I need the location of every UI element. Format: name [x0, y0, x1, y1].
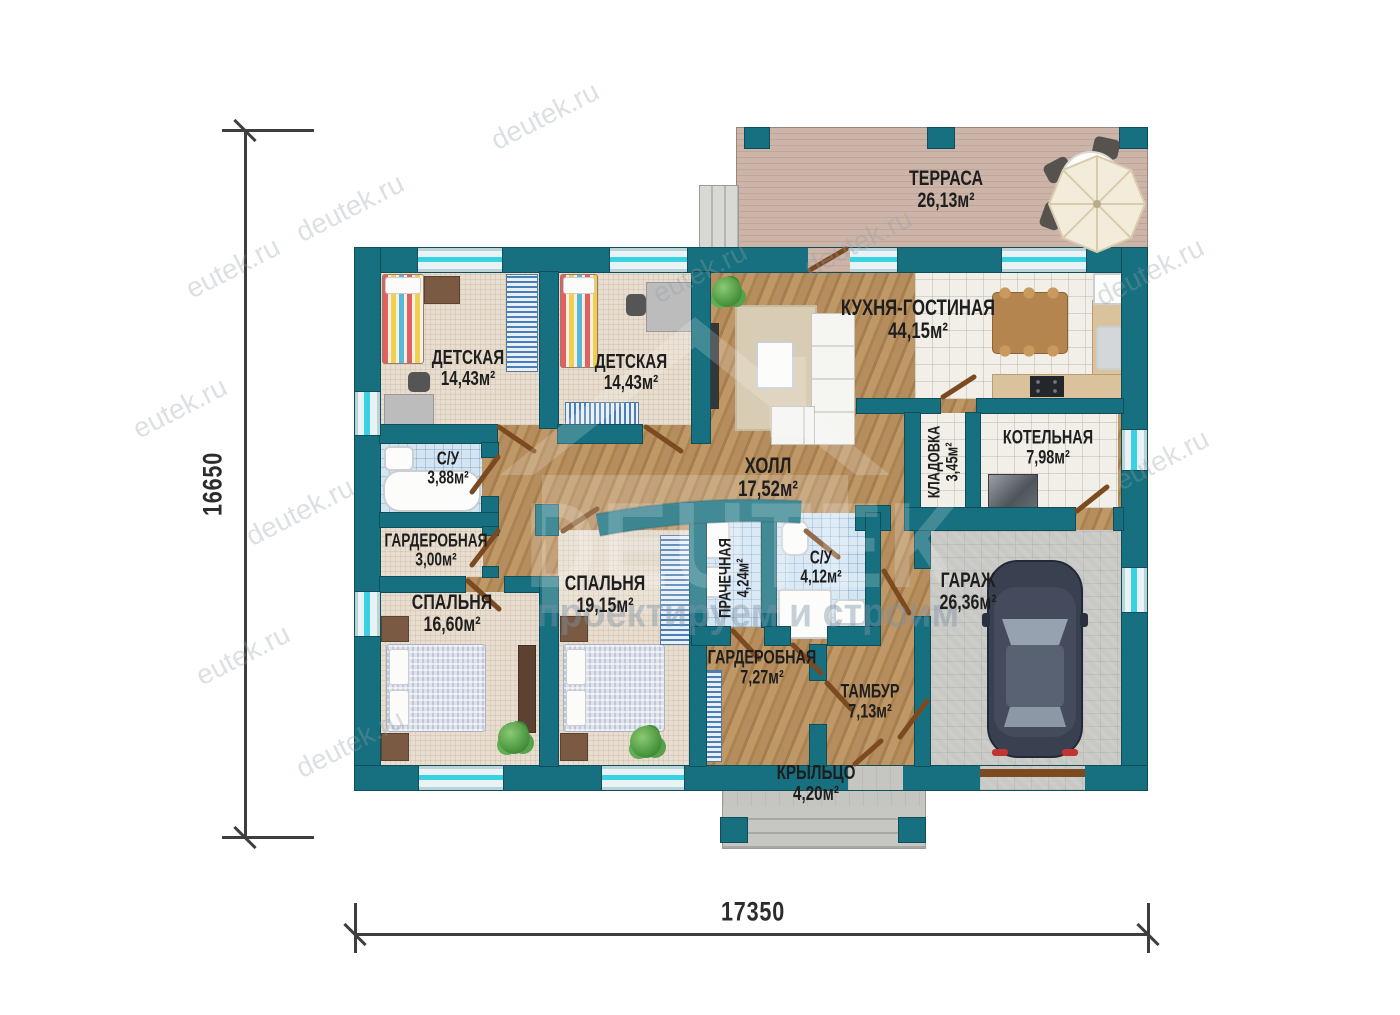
room-area: 4,12м²	[800, 566, 841, 586]
room-label-boiler: КОТЕЛЬНАЯ 7,98м²	[989, 428, 1108, 468]
room-label-nursery-2: ДЕТСКАЯ 14,43м²	[583, 352, 678, 394]
room-area: 14,43м²	[441, 368, 495, 390]
dimension-label-vertical: 16650	[198, 444, 229, 524]
room-area: 44,15м²	[888, 318, 948, 343]
room-label-hall: ХОЛЛ 17,52м²	[729, 455, 808, 501]
room-label-bathroom-1: С/У 3,88м²	[421, 449, 475, 486]
room-area: 4,24м²	[733, 558, 752, 597]
dimension-label-horizontal: 17350	[713, 897, 793, 928]
room-label-pantry: КЛАДОВКА 3,45м²	[925, 414, 960, 509]
room-area: 3,88м²	[427, 467, 468, 487]
room-name: ТЕРРАСА	[909, 167, 983, 190]
room-area: 3,00м²	[415, 549, 456, 569]
room-area: 17,52м²	[738, 476, 798, 501]
room-name: КРЫЛЬЦО	[777, 762, 856, 784]
room-area: 16,60м²	[423, 613, 480, 636]
room-name: ТАМБУР	[840, 681, 899, 702]
room-label-nursery-1: ДЕТСКАЯ 14,43м²	[420, 348, 515, 390]
room-label-laundry: ПРАЧЕЧНАЯ 4,24м²	[716, 525, 751, 630]
room-area: 14,43м²	[604, 372, 658, 394]
room-area: 4,20м²	[793, 783, 839, 805]
room-label-porch: КРЫЛЬЦО 4,20м²	[764, 763, 868, 805]
room-name: КУХНЯ-ГОСТИНАЯ	[841, 295, 995, 320]
room-label-bedroom-1: СПАЛЬНЯ 16,60м²	[399, 592, 505, 636]
room-label-kitchen-living: КУХНЯ-ГОСТИНАЯ 44,15м²	[817, 297, 1020, 343]
room-area: 26,13м²	[917, 189, 974, 212]
room-area: 19,15м²	[576, 594, 633, 617]
room-name: КОТЕЛЬНАЯ	[1003, 427, 1093, 448]
floor-plan-canvas: DEUTEK проектируем и строим deutek.ru eu…	[0, 0, 1400, 1015]
room-label-wardrobe-1: ГАРДЕРОБНАЯ 3,00м²	[368, 531, 503, 568]
room-name: ХОЛЛ	[745, 453, 792, 478]
room-name: С/У	[810, 547, 832, 567]
room-area: 7,13м²	[848, 701, 892, 722]
room-name: ДЕТСКАЯ	[595, 351, 667, 373]
room-label-bathroom-2: С/У 4,12м²	[794, 548, 848, 585]
room-name: ГАРДЕРОБНАЯ	[708, 647, 817, 668]
room-label-wardrobe-2: ГАРДЕРОБНАЯ 7,27м²	[691, 648, 834, 688]
room-label-terrace: ТЕРРАСА 26,13м²	[897, 168, 994, 212]
room-name: СПАЛЬНЯ	[565, 572, 645, 595]
room-name: ПРАЧЕЧНАЯ	[715, 538, 734, 618]
room-name: КЛАДОВКА	[924, 426, 943, 499]
room-name: С/У	[437, 448, 459, 468]
room-name: ГАРАЖ	[941, 569, 996, 592]
room-label-bedroom-2: СПАЛЬНЯ 19,15м²	[552, 573, 658, 617]
room-label-vestibule: ТАМБУР 7,13м²	[831, 682, 909, 722]
room-area: 7,27м²	[740, 667, 784, 688]
room-name: СПАЛЬНЯ	[412, 591, 492, 614]
room-area: 7,98м²	[1026, 447, 1070, 468]
room-area: 26,36м²	[939, 591, 996, 614]
room-name: ГАРДЕРОБНАЯ	[385, 530, 488, 550]
room-label-garage: ГАРАЖ 26,36м²	[930, 570, 1005, 614]
room-name: ДЕТСКАЯ	[432, 347, 504, 369]
room-area: 3,45м²	[942, 442, 961, 481]
